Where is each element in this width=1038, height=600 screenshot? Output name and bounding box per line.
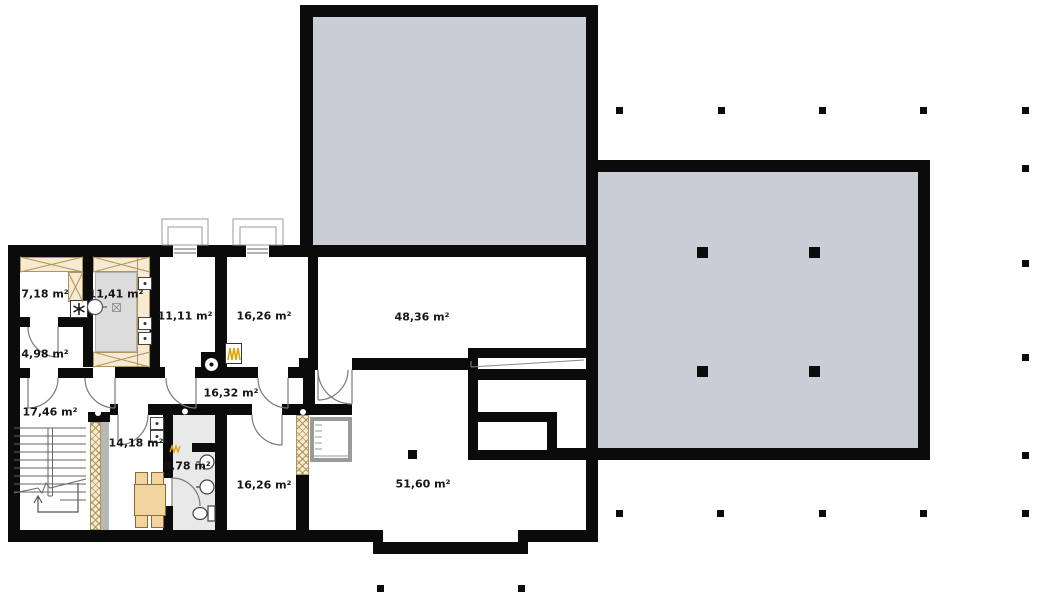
column-marker-small [718, 107, 725, 114]
right-terrace-slab [598, 172, 918, 448]
column-marker-small [717, 510, 724, 517]
room-area-label-room-f: 4,98 m² [21, 348, 68, 361]
wall [88, 412, 110, 422]
wall [215, 415, 227, 530]
hatched-wall [90, 422, 101, 530]
wall [468, 369, 598, 380]
column-marker-small [518, 585, 525, 592]
wall [468, 348, 478, 460]
wardrobe-strip [137, 257, 150, 367]
[object [48, 428, 53, 496]
column-marker-small [1022, 354, 1029, 361]
room-area-label-room-h: 16,26 m² [237, 479, 292, 492]
wall [352, 358, 468, 370]
column-marker-large [697, 366, 708, 377]
column-marker-small [1022, 510, 1029, 517]
wall [58, 317, 93, 327]
wall [308, 257, 318, 369]
[object [252, 415, 282, 445]
wall [300, 5, 598, 17]
wall [20, 317, 30, 327]
window [173, 245, 197, 257]
dining-table [134, 484, 166, 516]
[object [168, 227, 202, 245]
room-area-label-room-e: 48,36 m² [395, 311, 450, 324]
staircase [14, 428, 86, 500]
column-marker-small [819, 510, 826, 517]
bathroom-partition [192, 443, 217, 452]
wall [110, 404, 118, 415]
wall [373, 542, 528, 554]
upper-terrace-slab [313, 17, 586, 245]
wall [586, 160, 930, 172]
room-area-label-room-c: 11,11 m² [158, 310, 213, 323]
wall [115, 367, 165, 378]
room-area-label-room-b: 11,41 m² [89, 288, 144, 301]
room-area-label-room-i: 51,60 m² [396, 478, 451, 491]
wall [296, 475, 309, 530]
room-area-label-stair-hall: 17,46 m² [23, 406, 78, 419]
fireplace-flue-box [225, 343, 242, 364]
wall [8, 245, 20, 542]
wall-niche-line [471, 360, 584, 367]
wall [20, 368, 30, 378]
wall [282, 404, 352, 415]
[object [233, 219, 283, 245]
room-area-label-hall: 16,32 m² [204, 387, 259, 400]
lift-unit [310, 417, 352, 462]
kitchen-appliance-box [150, 417, 164, 430]
hatched-wall [296, 415, 309, 475]
room-area-label-bathroom: 8,78 m² [163, 460, 210, 473]
stair-direction-arrow [34, 483, 78, 512]
column-marker-small [1022, 452, 1029, 459]
wall [148, 404, 252, 415]
wall [300, 5, 313, 257]
[object [318, 370, 352, 404]
wall [918, 160, 930, 460]
column-marker-large [697, 247, 708, 258]
column-marker-small [819, 107, 826, 114]
shelf-box [138, 317, 152, 330]
column-marker-small [1022, 107, 1029, 114]
ventilation-unit-box [70, 300, 88, 318]
closet-platform [95, 272, 137, 352]
wall [557, 448, 598, 460]
[object [240, 227, 276, 245]
wall [468, 348, 598, 358]
shelf-box [138, 332, 152, 345]
column-marker-small [616, 510, 623, 517]
wall [299, 358, 318, 370]
bathroom-floor [173, 415, 215, 530]
window-sill [162, 219, 283, 245]
wall [468, 412, 557, 422]
column-marker-small [616, 107, 623, 114]
floor-plan-canvas: 7,18 m²11,41 m²11,11 m²16,26 m²48,36 m²4… [0, 0, 1038, 600]
wardrobe-strip [20, 257, 83, 272]
[object [28, 378, 58, 408]
[object [318, 370, 348, 400]
[object [471, 360, 584, 367]
column-marker-large [809, 366, 820, 377]
wall [8, 530, 375, 542]
column-marker-small [920, 510, 927, 517]
[object [162, 219, 208, 245]
column-marker-small [1022, 165, 1029, 172]
room-area-label-room-g: 14,18 m² [109, 437, 164, 450]
[object [14, 428, 86, 500]
wardrobe-strip [68, 272, 83, 302]
column-marker-small [377, 585, 384, 592]
wall [586, 5, 598, 542]
[object [34, 483, 78, 512]
column-marker-small [920, 107, 927, 114]
chair [135, 515, 148, 528]
column-marker-medium [408, 450, 417, 459]
room-area-label-room-a: 7,18 m² [21, 288, 68, 301]
chimney-block [201, 352, 222, 377]
wall [58, 368, 93, 378]
column-marker-large [809, 247, 820, 258]
room-area-label-room-d: 16,26 m² [237, 310, 292, 323]
[object [14, 479, 86, 493]
wall [468, 450, 557, 460]
wall [586, 448, 930, 460]
column-marker-small [1022, 260, 1029, 267]
chair [151, 515, 164, 528]
window [246, 245, 269, 257]
